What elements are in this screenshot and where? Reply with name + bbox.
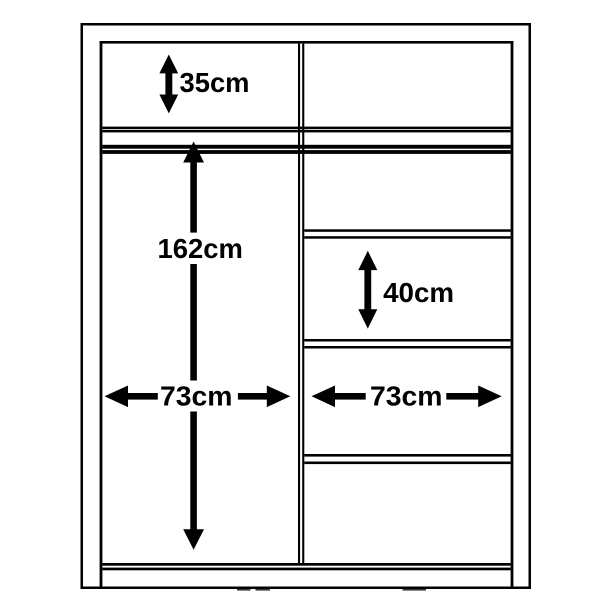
- svg-text:162cm: 162cm: [158, 233, 243, 264]
- svg-text:35cm: 35cm: [180, 67, 250, 98]
- svg-text:40cm: 40cm: [383, 277, 454, 308]
- svg-text:73cm: 73cm: [160, 381, 233, 412]
- svg-text:73cm: 73cm: [370, 381, 443, 412]
